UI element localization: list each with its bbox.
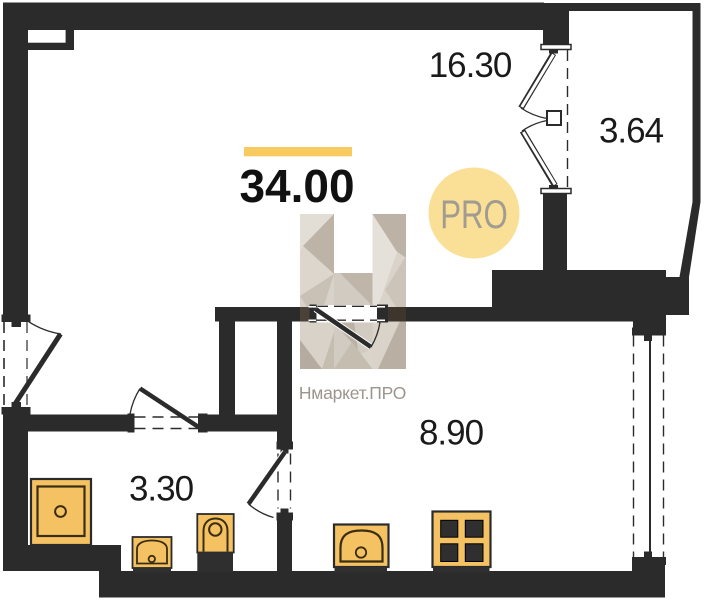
svg-text:16.30: 16.30 bbox=[429, 46, 512, 85]
svg-text:Нмаркет.ПРО: Нмаркет.ПРО bbox=[299, 383, 406, 403]
svg-text:8.90: 8.90 bbox=[419, 414, 484, 453]
svg-text:PRO: PRO bbox=[440, 192, 508, 237]
svg-text:34.00: 34.00 bbox=[239, 160, 354, 212]
svg-text:3.30: 3.30 bbox=[129, 470, 194, 509]
svg-text:3.64: 3.64 bbox=[599, 112, 664, 151]
